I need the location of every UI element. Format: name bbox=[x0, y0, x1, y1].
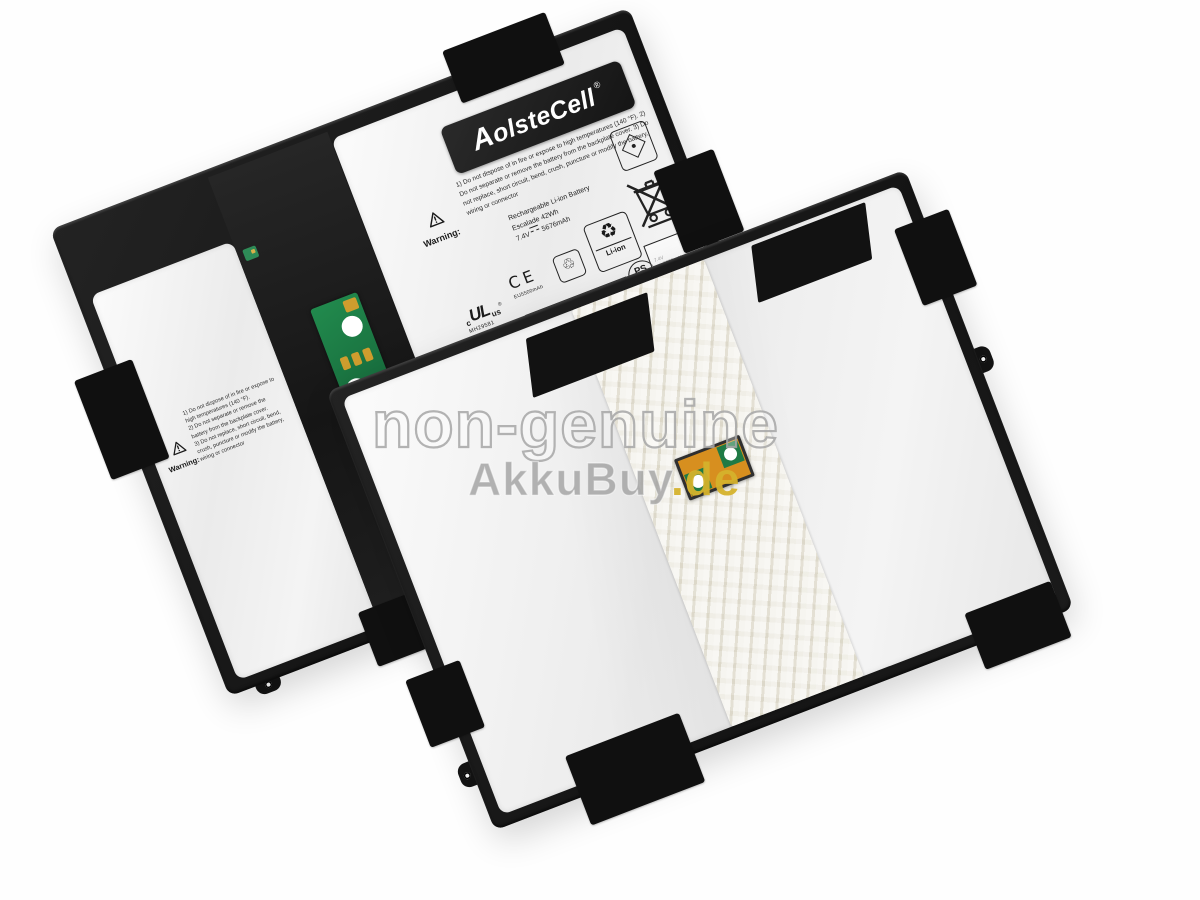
warning-title: Warning: bbox=[167, 454, 202, 475]
warning-block-left: Warning: 1) Do not dispose of in fire or… bbox=[150, 373, 299, 476]
warning-flag: Warning: bbox=[408, 202, 468, 251]
solder-pad bbox=[251, 249, 256, 254]
gold-contact-pad bbox=[342, 297, 359, 313]
pcb-green-pad bbox=[684, 467, 712, 495]
mobius-loop-mark: ♲ bbox=[551, 248, 587, 284]
registered-mark: ® bbox=[592, 79, 602, 91]
mobius-loop-icon: ♲ bbox=[553, 249, 586, 281]
product-photo-background: Warning: 1) Do not dispose of in fire or… bbox=[0, 0, 1200, 900]
caution-triangle-icon bbox=[424, 209, 445, 229]
dc-symbol-icon bbox=[530, 224, 541, 234]
contact-hole bbox=[722, 446, 739, 463]
screw-hole bbox=[979, 355, 988, 364]
gold-contact-pad bbox=[339, 356, 351, 371]
pcb-green-pad bbox=[716, 440, 744, 468]
gold-contact-pad bbox=[362, 347, 374, 362]
voltage-value: 7.4V bbox=[515, 231, 531, 243]
warning-text: 1) Do not dispose of in fire or expose t… bbox=[182, 375, 296, 464]
registered-mark: ® bbox=[497, 301, 503, 308]
warning-title: Warning: bbox=[416, 224, 468, 252]
ce-mark: CE EU5500mAh bbox=[506, 264, 545, 300]
contact-hole bbox=[690, 473, 707, 490]
screw-hole bbox=[463, 771, 472, 780]
caution-triangle-icon bbox=[168, 438, 187, 456]
gold-contact-pad bbox=[351, 351, 363, 366]
pcb-hole bbox=[339, 313, 366, 340]
